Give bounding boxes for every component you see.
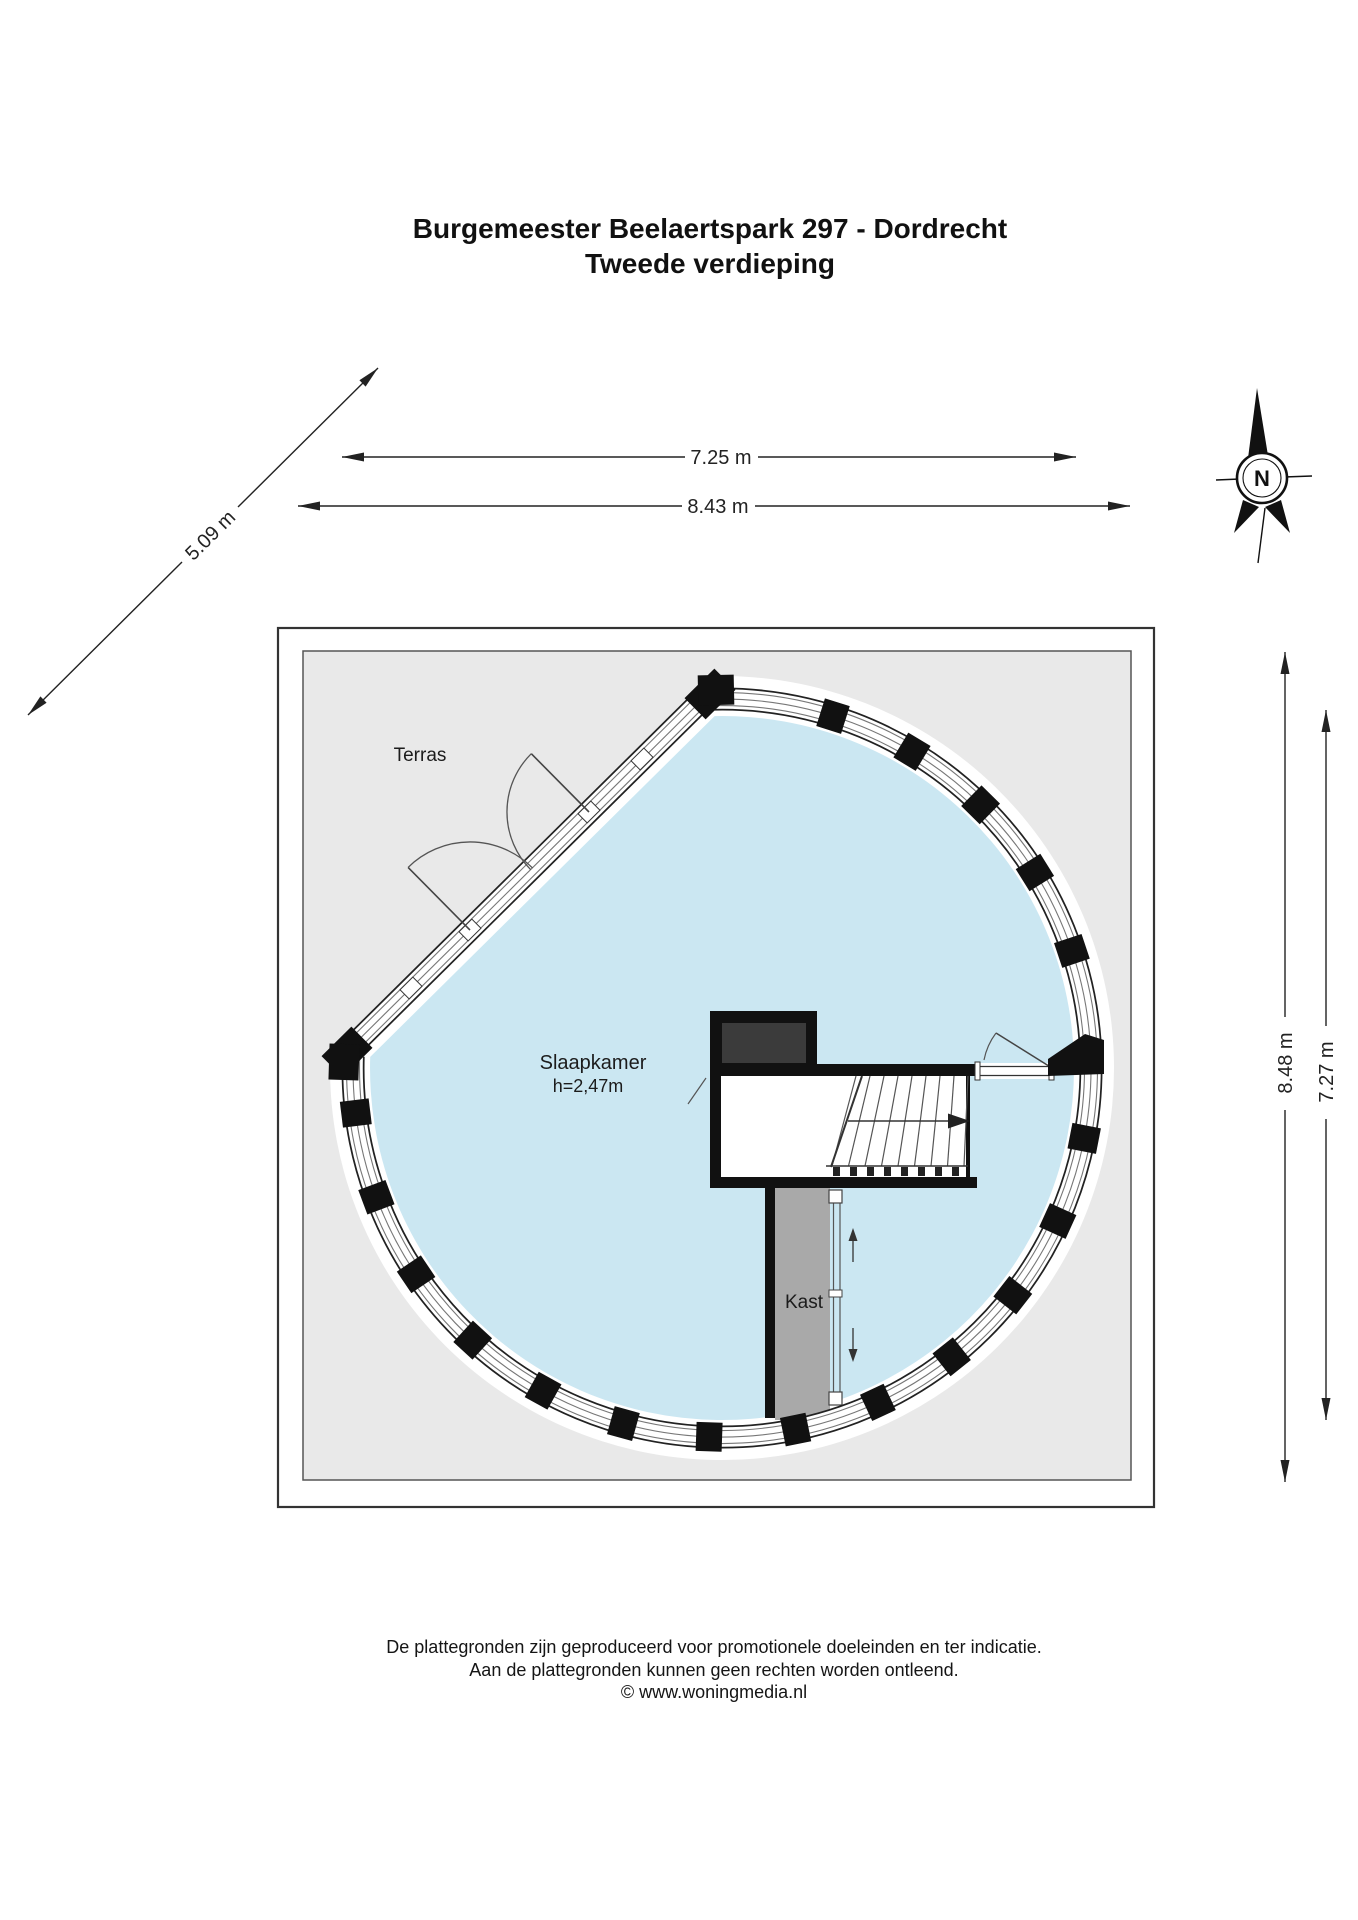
arrowhead-down-icon: [1281, 1460, 1290, 1482]
title-floor: Tweede verdieping: [585, 248, 835, 279]
floorplan-page: Burgemeester Beelaertspark 297 - Dordrec…: [0, 0, 1358, 1920]
arrowhead-right-icon: [1108, 502, 1130, 511]
footer-line-2: Aan de plattegronden kunnen geen rechten…: [469, 1660, 958, 1680]
shaft: [721, 1022, 807, 1064]
footer-line-1: De plattegronden zijn geproduceerd voor …: [386, 1637, 1041, 1657]
arrowhead-down-icon: [1322, 1398, 1331, 1420]
closet-label: Kast: [785, 1292, 824, 1313]
footer-disclaimer: De plattegronden zijn geproduceerd voor …: [386, 1637, 1041, 1702]
bedroom-height-label: h=2,47m: [553, 1076, 624, 1096]
title-address: Burgemeester Beelaertspark 297 - Dordrec…: [413, 213, 1007, 244]
arrowhead-left-icon: [298, 502, 320, 511]
dimension-top-inner: 7.25 m: [342, 447, 1076, 469]
dim-label-diagonal: 5.09 m: [181, 506, 240, 565]
compass-north-icon: N: [1216, 388, 1312, 563]
page-title: Burgemeester Beelaertspark 297 - Dordrec…: [413, 213, 1007, 279]
dim-label-right-inner: 7.27 m: [1316, 1041, 1338, 1102]
dimension-right-outer: 8.48 m: [1275, 652, 1297, 1482]
floorplan: Terras Slaapkamer h=2,47m Kast: [278, 628, 1154, 1507]
dim-label-right-outer: 8.48 m: [1275, 1032, 1297, 1093]
terrace-label: Terras: [394, 745, 447, 766]
closet-wall: [765, 1186, 775, 1418]
footer-line-3: © www.woningmedia.nl: [621, 1682, 807, 1702]
bedroom-label: Slaapkamer: [540, 1052, 647, 1074]
dim-label-top-inner: 7.25 m: [690, 447, 751, 469]
arrowhead-up-icon: [1322, 710, 1331, 732]
dim-label-top-outer: 8.43 m: [687, 496, 748, 518]
arrowhead-right-icon: [1054, 453, 1076, 462]
arrowhead-left-icon: [342, 453, 364, 462]
dimension-top-outer: 8.43 m: [298, 496, 1130, 518]
arrowhead-up-icon: [1281, 652, 1290, 674]
dimension-right-inner: 7.27 m: [1316, 710, 1338, 1420]
compass-north-label: N: [1254, 466, 1270, 491]
